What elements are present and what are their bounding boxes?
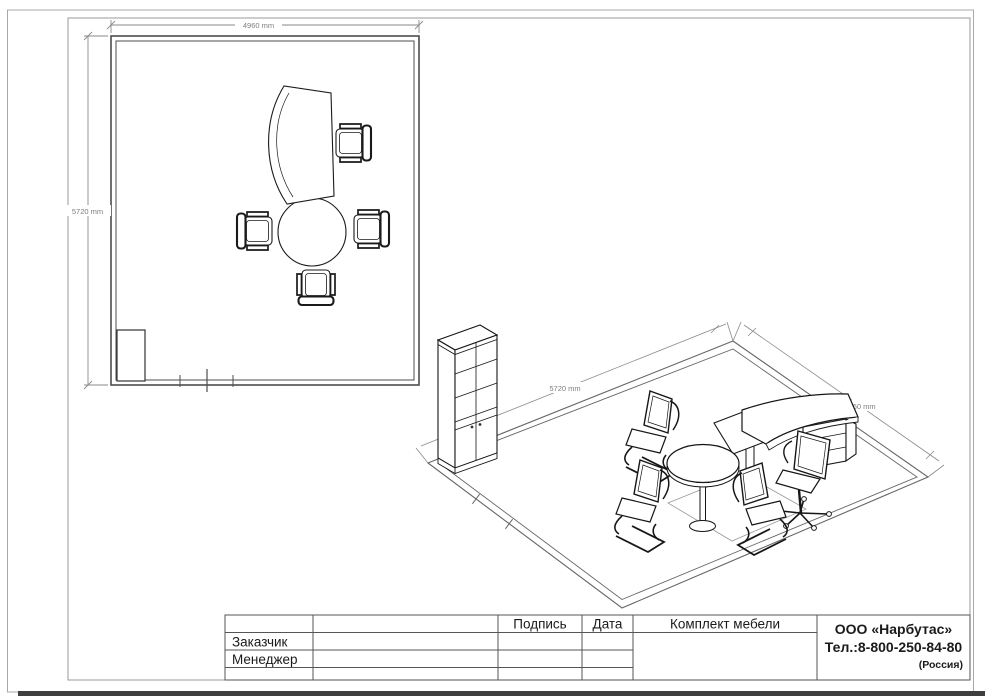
chair-3d-front-left <box>615 460 669 552</box>
round-table-plan <box>278 198 346 266</box>
iso-view: 5720 mm 4960 mm <box>416 322 944 608</box>
door-knob <box>479 423 482 426</box>
drawing-canvas: 4960 mm 5720 mm <box>0 0 988 700</box>
plan-width-label: 4960 mm <box>243 21 274 30</box>
date-header: Дата <box>593 617 623 632</box>
plan-height-label: 5720 mm <box>72 207 103 216</box>
cabinet-plan <box>117 330 145 381</box>
manager-label: Менеджер <box>232 652 298 667</box>
chair-plan-left <box>237 212 272 250</box>
company-phone: Тел.:8-800-250-84-80 <box>825 639 963 655</box>
round-table-3d <box>667 445 739 532</box>
plan-view: 4960 mm 5720 mm <box>64 19 423 392</box>
iso-left-dim-label: 5720 mm <box>549 384 580 393</box>
chair-plan-top <box>336 124 371 162</box>
signature-header: Подпись <box>513 617 566 632</box>
company-country: (Россия) <box>919 659 963 671</box>
page-bottom-edge <box>18 691 985 696</box>
chair-plan-bottom <box>297 270 335 305</box>
drawing-sheet: 4960 mm 5720 mm <box>0 0 988 700</box>
company-block: ООО «Нарбутас» Тел.:8-800-250-84-80 (Рос… <box>825 621 963 671</box>
project-title: Комплект мебели <box>670 617 780 632</box>
desk-plan <box>269 86 334 204</box>
door-knob <box>471 426 474 429</box>
customer-label: Заказчик <box>232 635 288 650</box>
cabinet-3d <box>438 325 497 474</box>
company-name: ООО «Нарбутас» <box>835 621 953 637</box>
chair-plan-right <box>354 210 389 248</box>
title-block: Подпись Дата Заказчик Менеджер Комплект … <box>225 615 970 680</box>
